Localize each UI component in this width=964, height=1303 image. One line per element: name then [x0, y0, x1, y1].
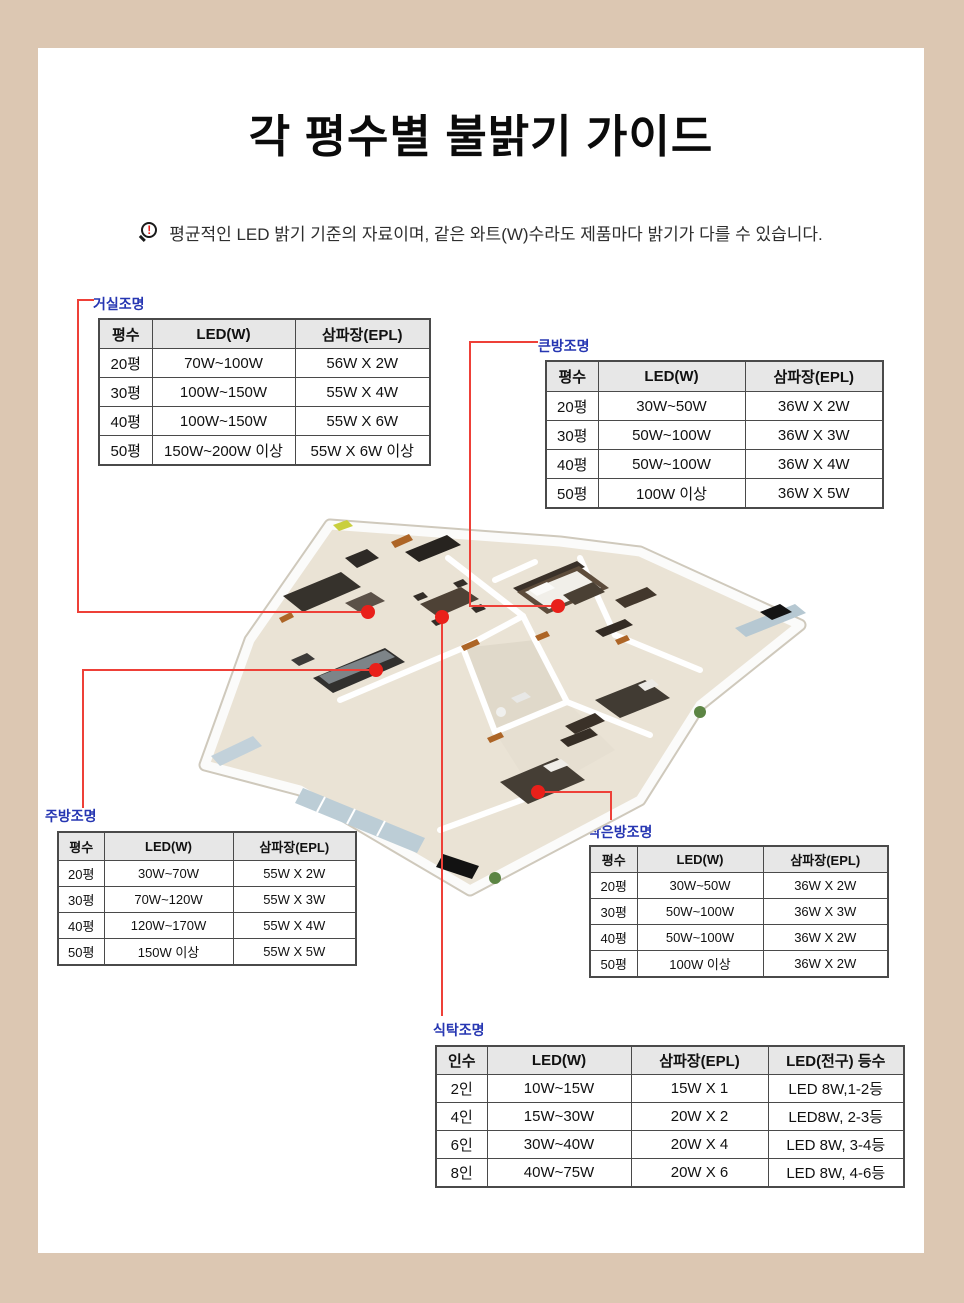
- magnifier-exclamation-icon: !: [139, 222, 160, 243]
- table-label-big-room: 큰방조명: [538, 336, 590, 356]
- table-cell: 40평: [590, 925, 637, 951]
- column-header: LED(W): [487, 1046, 631, 1075]
- table-cell: 100W~150W: [152, 407, 295, 436]
- table-cell: 40평: [546, 450, 598, 479]
- table-row: 30평50W~100W36W X 3W: [590, 899, 888, 925]
- table-row: 20평70W~100W56W X 2W: [99, 349, 430, 378]
- big-room-table: 평수LED(W)삼파장(EPL)20평30W~50W36W X 2W30평50W…: [545, 360, 884, 509]
- callout-line-big-room: [469, 341, 471, 607]
- table-cell: 120W~170W: [104, 913, 233, 939]
- table-cell: 4인: [436, 1103, 487, 1131]
- column-header: 삼파장(EPL): [631, 1046, 768, 1075]
- callout-dot-small-room: [531, 785, 545, 799]
- table-row: 20평30W~50W36W X 2W: [546, 392, 883, 421]
- table-cell: 50W~100W: [637, 925, 763, 951]
- column-header: LED(W): [152, 319, 295, 349]
- column-header: LED(전구) 등수: [768, 1046, 904, 1075]
- callout-dot-big-room: [551, 599, 565, 613]
- callout-line-big-room: [469, 605, 558, 607]
- table-cell: 30W~40W: [487, 1131, 631, 1159]
- table-cell: 50평: [58, 939, 104, 966]
- table-cell: 20평: [58, 861, 104, 887]
- table-cell: 36W X 2W: [763, 925, 888, 951]
- column-header: 인수: [436, 1046, 487, 1075]
- table-cell: 50W~100W: [598, 450, 745, 479]
- table-cell: 2인: [436, 1075, 487, 1103]
- table-row: 30평100W~150W55W X 4W: [99, 378, 430, 407]
- table-row: 6인30W~40W20W X 4LED 8W, 3-4등: [436, 1131, 904, 1159]
- table-cell: 55W X 6W 이상: [295, 436, 430, 466]
- table-cell: 40W~75W: [487, 1159, 631, 1188]
- table-cell: 56W X 2W: [295, 349, 430, 378]
- table-cell: 15W~30W: [487, 1103, 631, 1131]
- table-header-row: 평수LED(W)삼파장(EPL): [99, 319, 430, 349]
- callout-line-small-room: [538, 791, 612, 793]
- table-row: 4인15W~30W20W X 2LED8W, 2-3등: [436, 1103, 904, 1131]
- table-cell: 55W X 4W: [295, 378, 430, 407]
- notice: ! 평균적인 LED 밝기 기준의 자료이며, 같은 와트(W)수라도 제품마다…: [38, 220, 924, 245]
- table-cell: 20W X 2: [631, 1103, 768, 1131]
- table-cell: 36W X 3W: [745, 421, 883, 450]
- table-cell: LED 8W, 4-6등: [768, 1159, 904, 1188]
- table-header-row: 인수LED(W)삼파장(EPL)LED(전구) 등수: [436, 1046, 904, 1075]
- table-cell: 30평: [58, 887, 104, 913]
- table-row: 8인40W~75W20W X 6LED 8W, 4-6등: [436, 1159, 904, 1188]
- column-header: 평수: [58, 832, 104, 861]
- table-cell: 55W X 4W: [233, 913, 356, 939]
- table-cell: 36W X 4W: [745, 450, 883, 479]
- table-cell: 20W X 4: [631, 1131, 768, 1159]
- table-row: 40평120W~170W55W X 4W: [58, 913, 356, 939]
- table-row: 2인10W~15W15W X 1LED 8W,1-2등: [436, 1075, 904, 1103]
- table-label-kitchen: 주방조명: [45, 806, 97, 826]
- table-cell: 36W X 2W: [763, 951, 888, 978]
- table-cell: 15W X 1: [631, 1075, 768, 1103]
- table-cell: 8인: [436, 1159, 487, 1188]
- table-cell: 30W~50W: [598, 392, 745, 421]
- table-cell: 150W~200W 이상: [152, 436, 295, 466]
- table-cell: 150W 이상: [104, 939, 233, 966]
- table-row: 30평50W~100W36W X 3W: [546, 421, 883, 450]
- callout-dot-dining: [435, 610, 449, 624]
- table-header-row: 평수LED(W)삼파장(EPL): [546, 361, 883, 392]
- table-row: 50평150W 이상55W X 5W: [58, 939, 356, 966]
- callout-line-living: [77, 299, 79, 613]
- table-row: 40평50W~100W36W X 2W: [590, 925, 888, 951]
- table-row: 40평50W~100W36W X 4W: [546, 450, 883, 479]
- notice-text: 평균적인 LED 밝기 기준의 자료이며, 같은 와트(W)수라도 제품마다 밝…: [169, 220, 823, 245]
- table-cell: 50W~100W: [598, 421, 745, 450]
- table-cell: 70W~100W: [152, 349, 295, 378]
- table-cell: 20평: [546, 392, 598, 421]
- content-panel: 각 평수별 불밝기 가이드 ! 평균적인 LED 밝기 기준의 자료이며, 같은…: [38, 48, 924, 1253]
- table-cell: 20평: [99, 349, 152, 378]
- callout-line-living: [77, 611, 370, 613]
- column-header: 삼파장(EPL): [745, 361, 883, 392]
- callout-line-kitchen: [82, 669, 376, 671]
- column-header: 삼파장(EPL): [295, 319, 430, 349]
- column-header: LED(W): [598, 361, 745, 392]
- table-cell: 100W~150W: [152, 378, 295, 407]
- callout-line-small-room: [610, 791, 612, 820]
- table-cell: 30평: [546, 421, 598, 450]
- table-cell: LED 8W,1-2등: [768, 1075, 904, 1103]
- table-cell: 55W X 6W: [295, 407, 430, 436]
- floor-plan-illustration: [195, 500, 815, 900]
- table-cell: 50평: [99, 436, 152, 466]
- table-label-dining: 식탁조명: [433, 1020, 485, 1040]
- column-header: 평수: [99, 319, 152, 349]
- table-cell: 36W X 3W: [763, 899, 888, 925]
- table-cell: 30평: [590, 899, 637, 925]
- table-row: 40평100W~150W55W X 6W: [99, 407, 430, 436]
- table-cell: 20W X 6: [631, 1159, 768, 1188]
- callout-line-big-room: [469, 341, 538, 343]
- callout-line-kitchen: [82, 669, 84, 808]
- callout-line-dining: [441, 617, 443, 1016]
- table-cell: 36W X 2W: [745, 392, 883, 421]
- callout-dot-living-room: [361, 605, 375, 619]
- table-cell: 30평: [99, 378, 152, 407]
- table-cell: 55W X 5W: [233, 939, 356, 966]
- table-cell: 100W 이상: [637, 951, 763, 978]
- table-cell: 50W~100W: [637, 899, 763, 925]
- page-background: 각 평수별 불밝기 가이드 ! 평균적인 LED 밝기 기준의 자료이며, 같은…: [0, 0, 964, 1303]
- table-cell: LED 8W, 3-4등: [768, 1131, 904, 1159]
- page-title: 각 평수별 불밝기 가이드: [38, 100, 924, 165]
- living-room-table: 평수LED(W)삼파장(EPL)20평70W~100W56W X 2W30평10…: [98, 318, 431, 466]
- dining-table: 인수LED(W)삼파장(EPL)LED(전구) 등수2인10W~15W15W X…: [435, 1045, 905, 1188]
- table-cell: 40평: [99, 407, 152, 436]
- table-cell: LED8W, 2-3등: [768, 1103, 904, 1131]
- table-row: 50평100W 이상36W X 2W: [590, 951, 888, 978]
- callout-dot-kitchen: [369, 663, 383, 677]
- callout-line-living: [77, 299, 94, 301]
- table-label-living-room: 거실조명: [93, 294, 145, 314]
- table-cell: 6인: [436, 1131, 487, 1159]
- table-cell: 40평: [58, 913, 104, 939]
- table-cell: 50평: [590, 951, 637, 978]
- table-row: 50평150W~200W 이상55W X 6W 이상: [99, 436, 430, 466]
- column-header: 평수: [546, 361, 598, 392]
- table-cell: 10W~15W: [487, 1075, 631, 1103]
